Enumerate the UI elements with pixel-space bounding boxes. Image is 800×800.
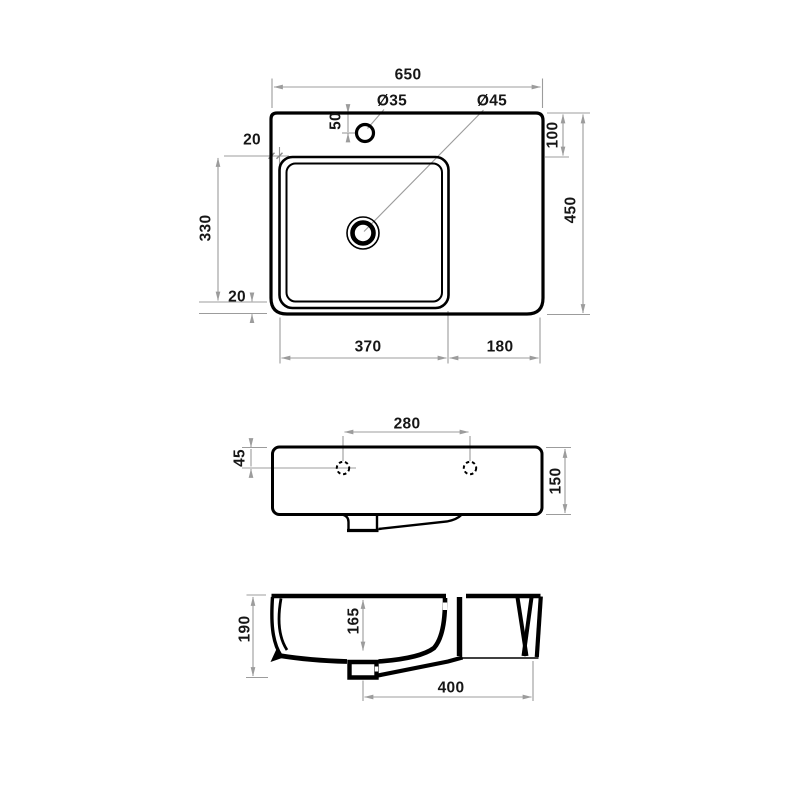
sink-outline-plan bbox=[271, 113, 543, 314]
dim-faucet-hole-dia: Ø35 bbox=[377, 93, 407, 109]
front-view-dimension-lines bbox=[242, 432, 571, 515]
basin-outer-rim bbox=[280, 157, 449, 308]
glaze-mark-2 bbox=[375, 667, 378, 672]
drain-leader-line bbox=[364, 110, 484, 232]
dim-faucet-offset: 50 bbox=[328, 112, 344, 130]
dim-drain-to-edge: 400 bbox=[438, 680, 465, 696]
dim-section-height: 190 bbox=[237, 616, 253, 643]
dim-left-gap: 20 bbox=[243, 132, 261, 148]
top-view bbox=[199, 79, 590, 364]
top-view-dimension-lines bbox=[199, 79, 590, 364]
front-view bbox=[242, 432, 571, 531]
dim-basin-length: 330 bbox=[198, 215, 214, 242]
dim-drain-hole-dia: Ø45 bbox=[477, 93, 507, 109]
tap-hole-hidden-right bbox=[464, 462, 476, 474]
dim-bottom-gap: 20 bbox=[228, 289, 246, 305]
drain-outlet-section bbox=[350, 662, 377, 678]
dim-overall-depth: 450 bbox=[563, 197, 579, 224]
drain-hole bbox=[353, 223, 374, 244]
dim-hole-spacing: 280 bbox=[394, 416, 421, 432]
sink-outline-front bbox=[273, 447, 543, 515]
faucet-hole bbox=[357, 125, 374, 142]
dim-basin-width: 370 bbox=[355, 339, 382, 355]
dim-front-height: 150 bbox=[548, 468, 564, 495]
section-view-dimension-lines bbox=[246, 595, 533, 701]
front-underside-profile bbox=[342, 515, 462, 531]
dim-overall-width: 650 bbox=[395, 67, 422, 83]
basin-inner-rim bbox=[287, 164, 443, 302]
dim-bowl-depth: 165 bbox=[346, 608, 362, 635]
dim-right-shelf: 180 bbox=[487, 339, 514, 355]
dim-edge-to-basin: 100 bbox=[545, 122, 561, 149]
section-view bbox=[246, 595, 541, 701]
technical-drawing-washbasin: 650 Ø35 Ø45 50 20 330 20 100 450 370 180… bbox=[0, 0, 800, 800]
glaze-mark bbox=[443, 603, 447, 611]
dim-hole-drop: 45 bbox=[232, 449, 248, 467]
drawing-canvas bbox=[0, 0, 800, 800]
section-geometry bbox=[271, 596, 541, 678]
